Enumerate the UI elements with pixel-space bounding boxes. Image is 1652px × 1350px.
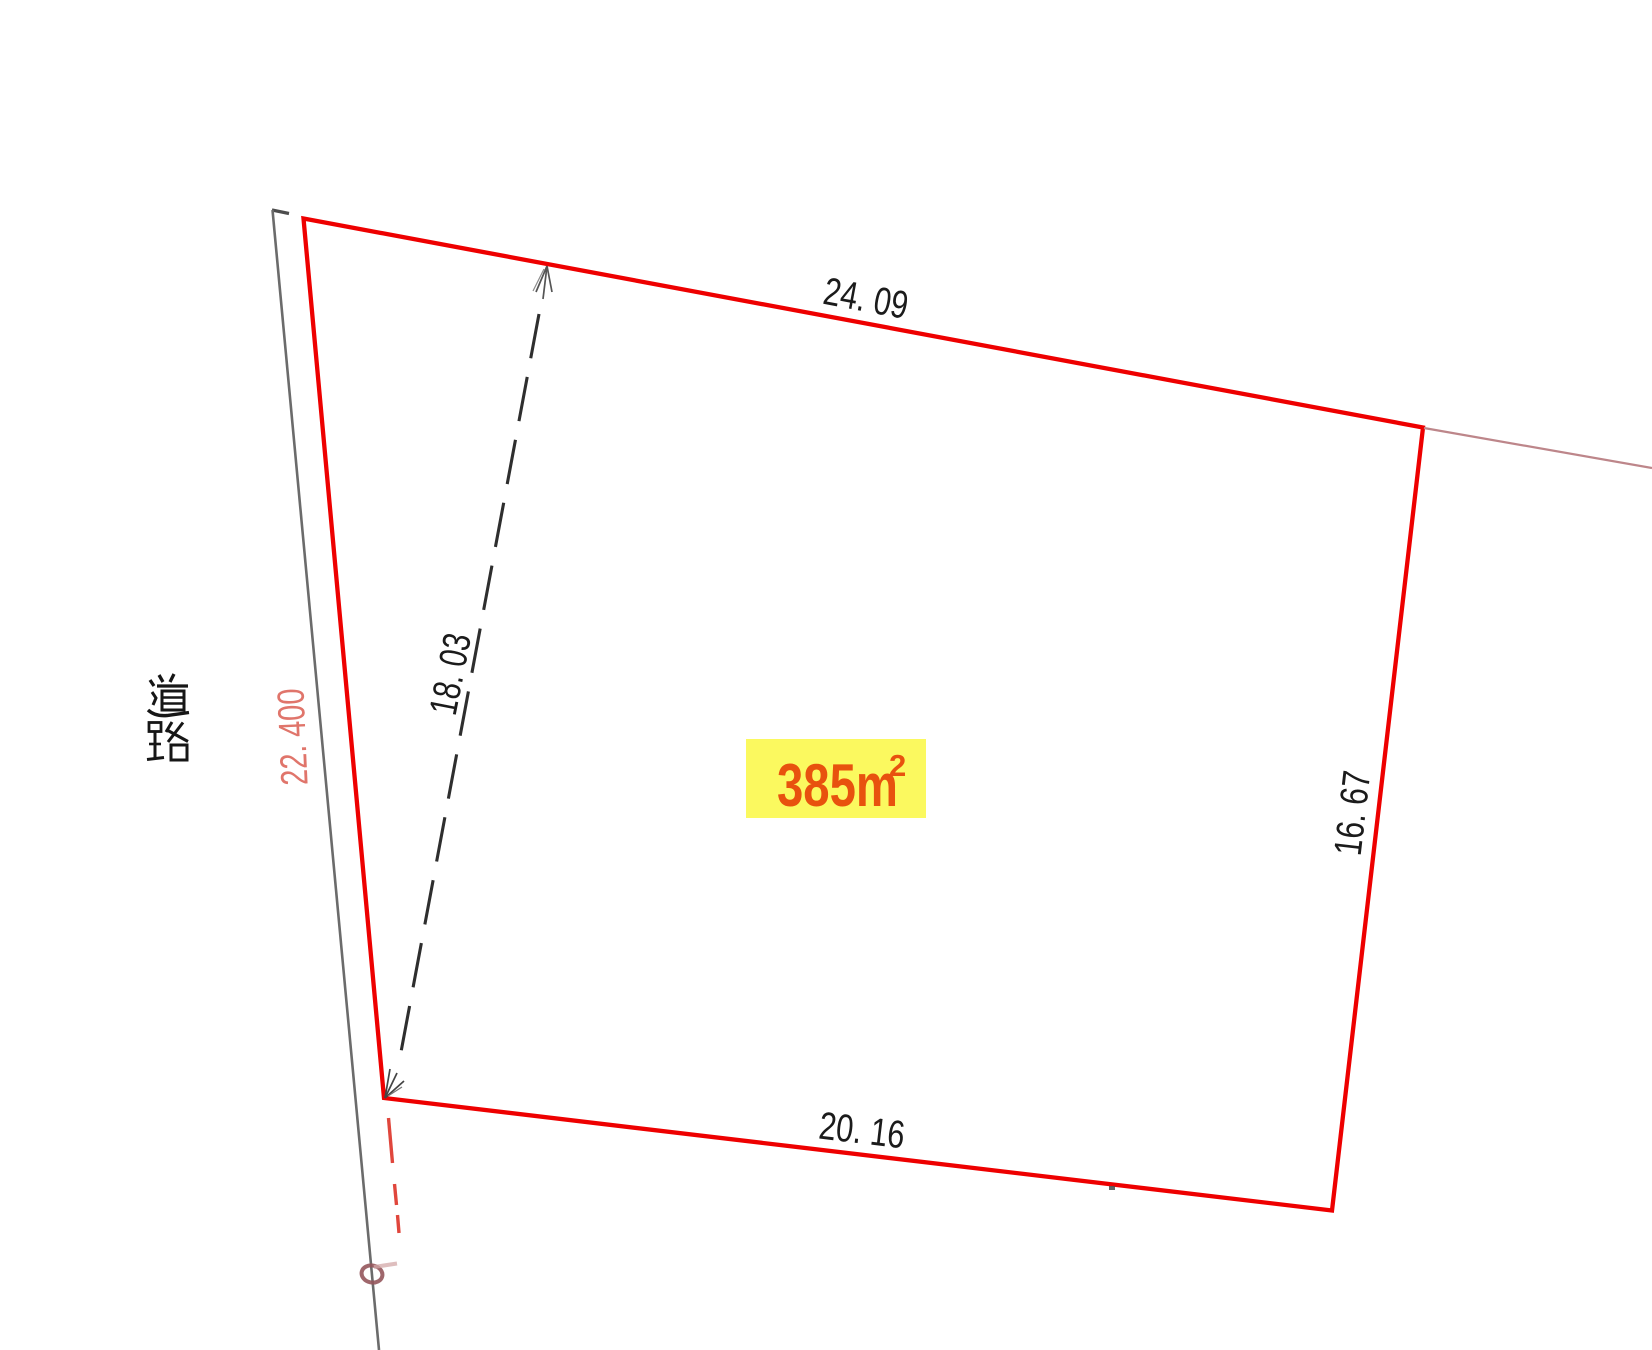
svg-text:385m: 385m [777,752,898,819]
svg-text:22. 400: 22. 400 [270,688,316,787]
svg-text:2: 2 [889,748,906,783]
